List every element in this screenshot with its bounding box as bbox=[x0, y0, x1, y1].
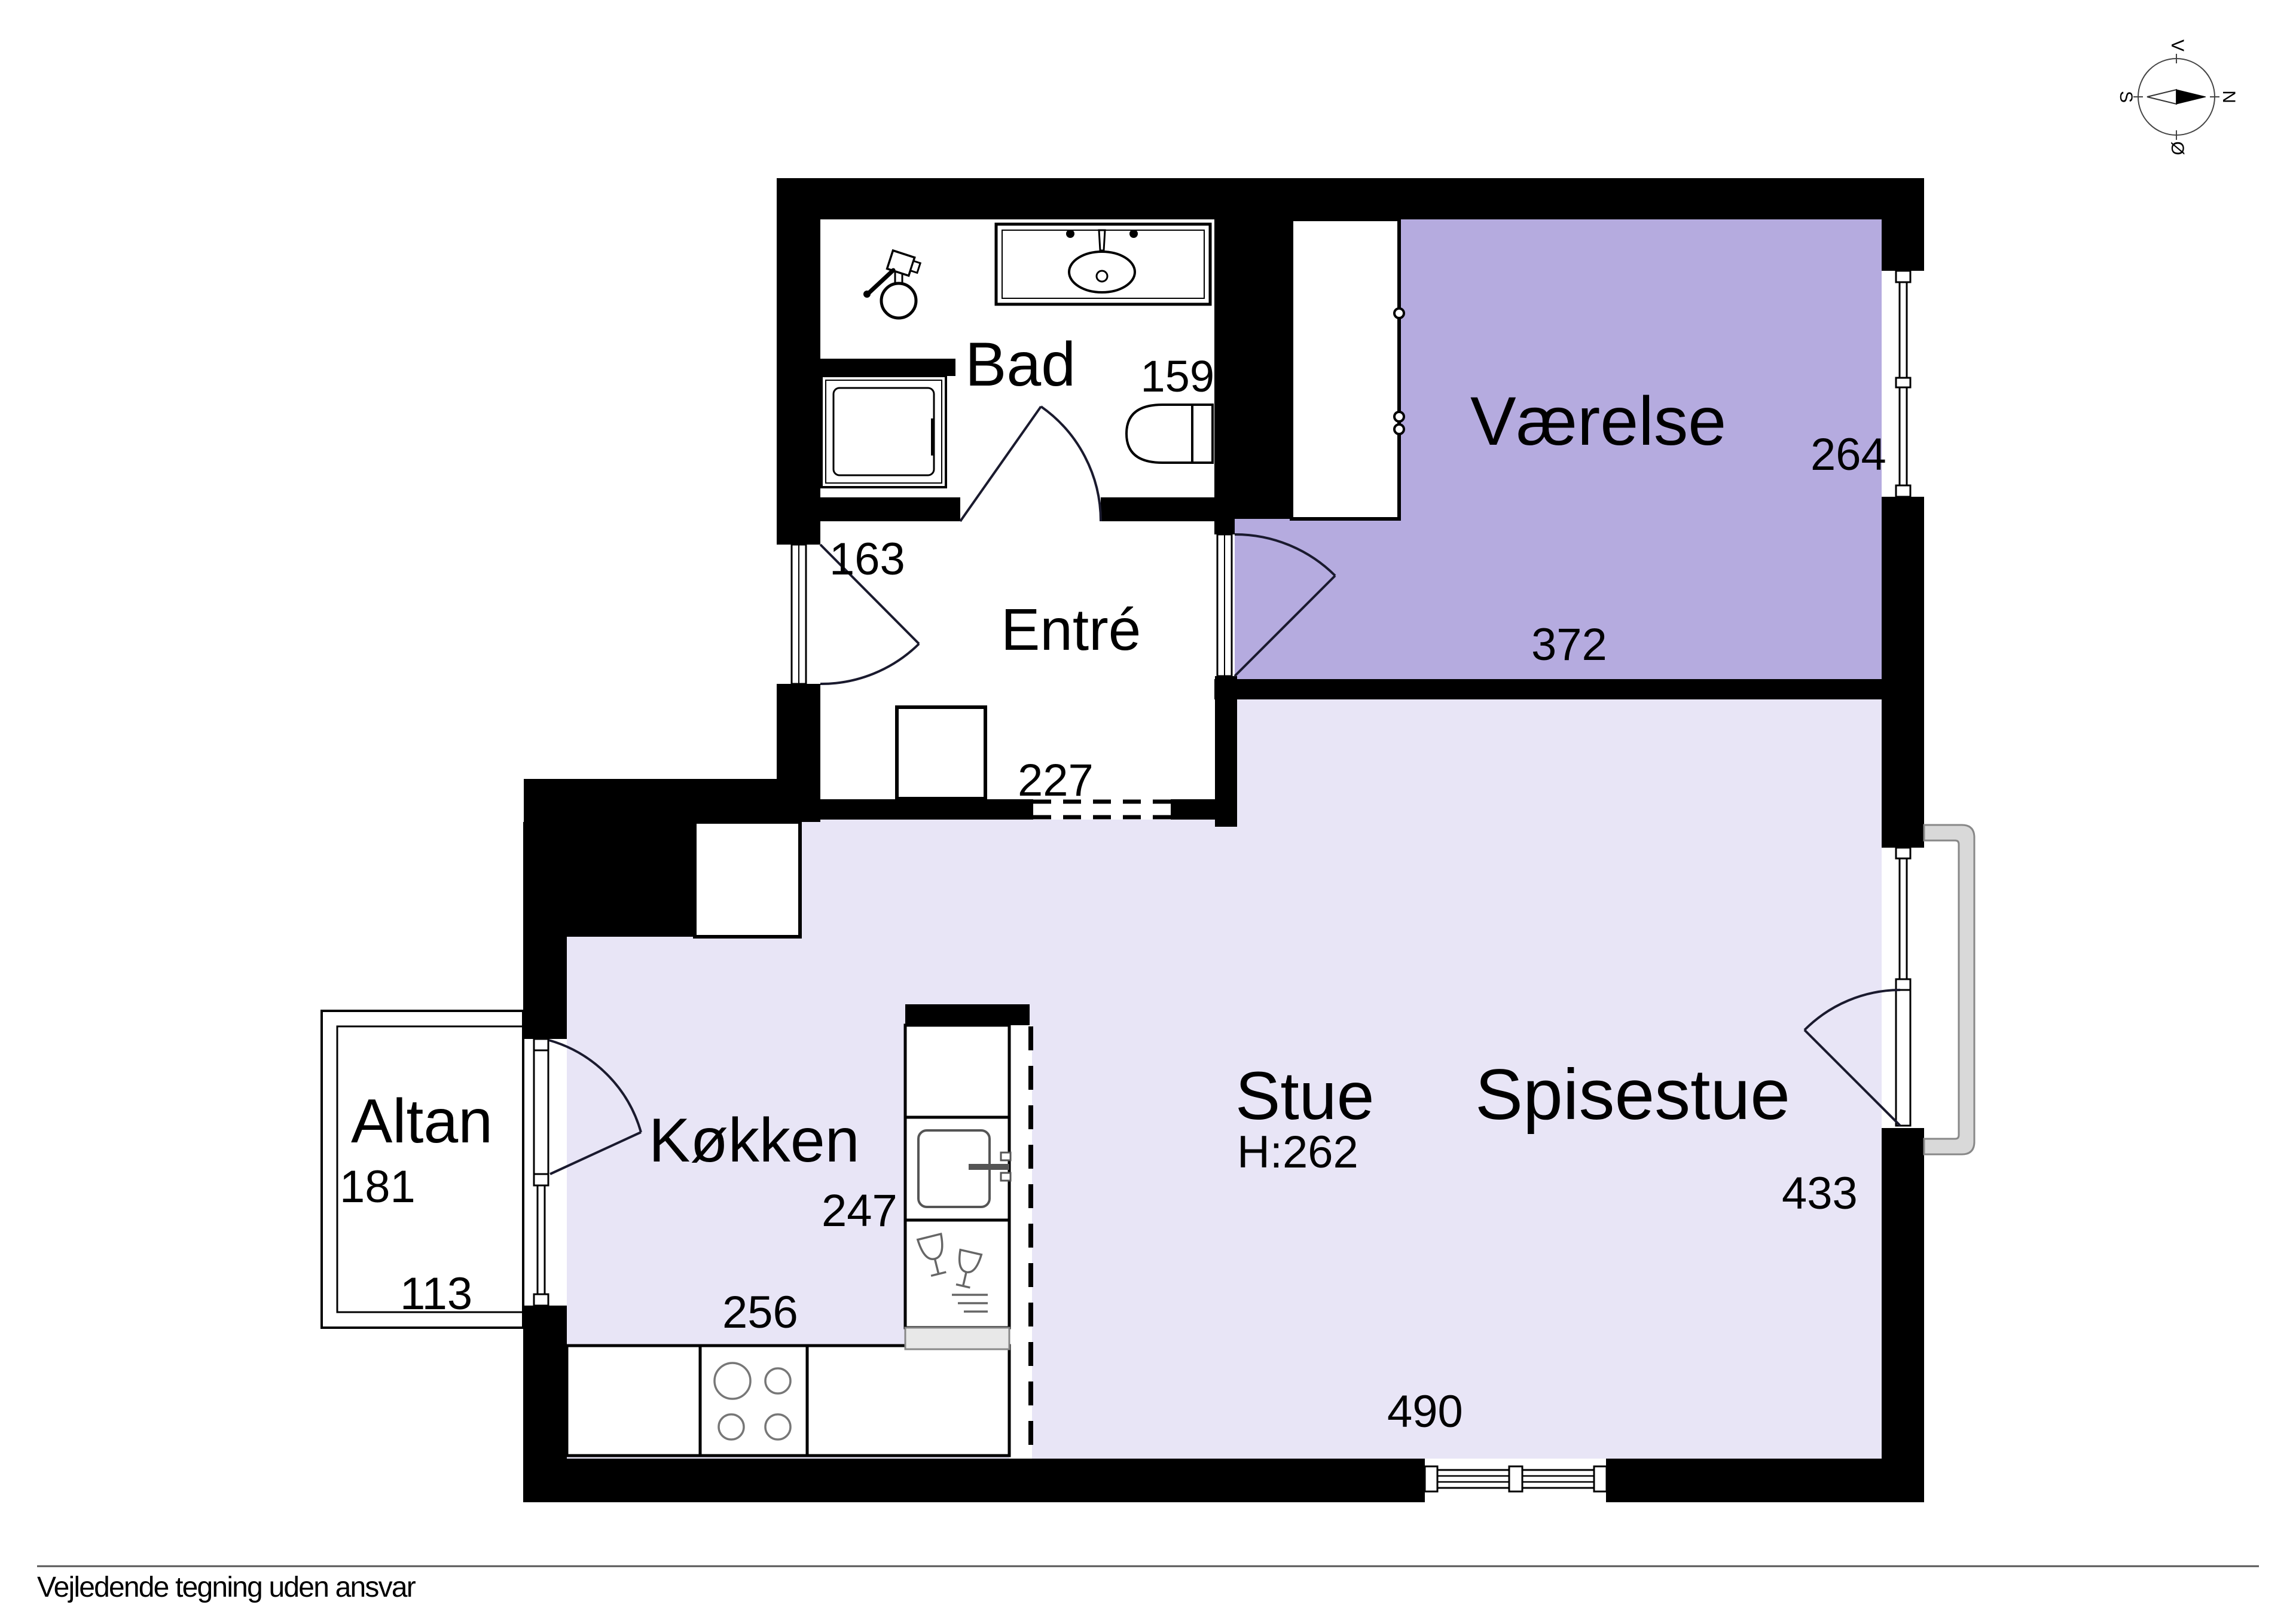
svg-text:227: 227 bbox=[1018, 755, 1094, 806]
svg-text:Bad: Bad bbox=[965, 330, 1076, 399]
svg-text:Vejledende tegning uden ansvar: Vejledende tegning uden ansvar bbox=[37, 1572, 416, 1603]
svg-text:Stue: Stue bbox=[1235, 1058, 1374, 1133]
svg-text:256: 256 bbox=[722, 1287, 798, 1338]
svg-text:Altan: Altan bbox=[351, 1087, 493, 1156]
svg-text:159: 159 bbox=[1141, 352, 1214, 401]
svg-text:Spisestue: Spisestue bbox=[1475, 1055, 1790, 1135]
svg-text:V: V bbox=[2167, 39, 2187, 51]
svg-text:113: 113 bbox=[400, 1269, 472, 1319]
svg-text:163: 163 bbox=[829, 534, 905, 585]
svg-text:Ø: Ø bbox=[2167, 141, 2187, 155]
svg-text:264: 264 bbox=[1810, 429, 1886, 480]
svg-text:Entré: Entré bbox=[1001, 597, 1141, 662]
svg-text:H:262: H:262 bbox=[1237, 1127, 1358, 1178]
svg-text:247: 247 bbox=[822, 1185, 897, 1236]
svg-text:S: S bbox=[2116, 91, 2136, 103]
svg-text:490: 490 bbox=[1387, 1386, 1463, 1437]
svg-text:Værelse: Værelse bbox=[1470, 383, 1726, 460]
svg-text:181: 181 bbox=[340, 1162, 416, 1212]
svg-text:433: 433 bbox=[1782, 1168, 1858, 1219]
svg-text:Køkken: Køkken bbox=[649, 1106, 860, 1175]
svg-text:N: N bbox=[2219, 90, 2239, 103]
svg-text:372: 372 bbox=[1531, 619, 1607, 670]
